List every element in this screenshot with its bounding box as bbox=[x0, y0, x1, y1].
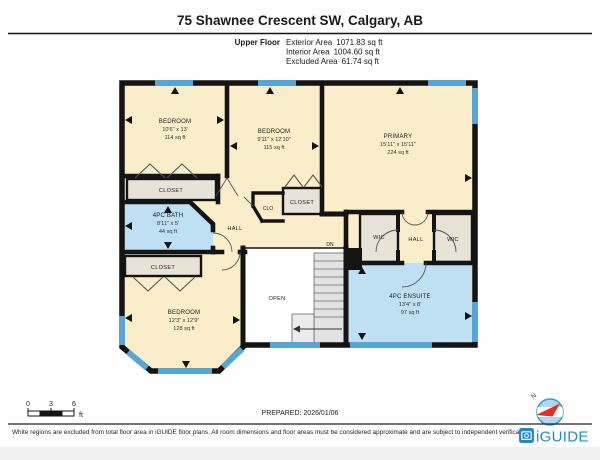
floor-label: Upper Floor bbox=[235, 38, 280, 47]
floor-plan-canvas: 75 Shawnee Crescent SW, Calgary, AB Uppe… bbox=[0, 0, 600, 460]
closet3-label: CLOSET bbox=[290, 200, 314, 206]
bath-dims: 8'11" x 5' bbox=[157, 221, 179, 227]
window-ensuite-bottom bbox=[350, 342, 432, 348]
window-bedroom2 bbox=[258, 80, 296, 86]
bedroom3-name: BEDROOM bbox=[168, 310, 200, 316]
stat-excluded-value: 61.74 sq ft bbox=[342, 57, 380, 66]
hall-right-label: HALL bbox=[408, 237, 423, 243]
bedroom2-dims: 9'11" x 12'10" bbox=[257, 137, 290, 143]
stat-interior-value: 1004.60 sq ft bbox=[334, 48, 381, 57]
clo-label: CLO bbox=[263, 206, 273, 212]
stat-interior-label: Interior Area bbox=[286, 48, 330, 57]
iguide-logo: iGUIDE bbox=[519, 428, 589, 446]
scale-tick-6: 6 bbox=[72, 401, 76, 408]
stat-interior: Interior Area1004.60 sq ft bbox=[286, 48, 381, 57]
bedroom3-dims: 12'3" x 12'9" bbox=[169, 318, 200, 324]
window-primary-top bbox=[428, 80, 466, 86]
scale-tick-3: 3 bbox=[49, 401, 53, 408]
window-ensuite-right bbox=[472, 302, 478, 342]
compass: N bbox=[530, 392, 564, 425]
stat-excluded-label: Excluded Area bbox=[286, 57, 338, 66]
bedroom2-area: 115 sq ft bbox=[263, 145, 284, 151]
window-open-bottom bbox=[270, 342, 320, 348]
bath-name: 4PC BATH bbox=[153, 213, 184, 219]
window-bedroom3-left bbox=[119, 316, 125, 345]
primary-dims: 15'11" x 15'11" bbox=[380, 142, 416, 148]
stat-exterior-label: Exterior Area bbox=[286, 38, 333, 47]
floor-plan-page: 75 Shawnee Crescent SW, Calgary, AB Uppe… bbox=[0, 0, 600, 460]
window-primary-right bbox=[472, 88, 478, 124]
bath-area: 44 sq ft bbox=[159, 229, 178, 235]
primary-area: 224 sq ft bbox=[387, 150, 409, 156]
scale-tick-0: 0 bbox=[26, 401, 30, 408]
bedroom2-name: BEDROOM bbox=[258, 129, 290, 135]
ensuite-name: 4PC ENSUITE bbox=[389, 294, 431, 300]
primary-name: PRIMARY bbox=[384, 134, 413, 140]
bedroom1-name: BEDROOM bbox=[159, 119, 191, 125]
page-title: 75 Shawnee Crescent SW, Calgary, AB bbox=[177, 13, 423, 28]
bedroom1-area: 114 sq ft bbox=[164, 135, 185, 141]
scale-bar: 0 3 6 ft bbox=[26, 401, 83, 419]
iguide-logo-text: iGUIDE bbox=[536, 429, 589, 446]
ensuite-area: 97 sq ft bbox=[401, 310, 420, 316]
closet1-label: CLOSET bbox=[159, 188, 183, 194]
window-bedroom1 bbox=[155, 80, 193, 86]
closet2-label: CLOSET bbox=[151, 265, 175, 271]
stat-exterior-value: 1071.83 sq ft bbox=[336, 38, 383, 47]
stat-exterior: Exterior Area1071.83 sq ft bbox=[286, 38, 383, 47]
bottom-strip bbox=[0, 447, 600, 460]
hall-center-label: HALL bbox=[227, 226, 242, 232]
wic-right-label: WIC bbox=[447, 237, 459, 243]
stat-excluded: Excluded Area61.74 sq ft bbox=[286, 57, 380, 66]
dn-label: DN bbox=[326, 242, 334, 248]
open-label: OPEN bbox=[268, 296, 285, 302]
scale-unit: ft bbox=[79, 412, 83, 419]
area-stats: Exterior Area1071.83 sq ft Interior Area… bbox=[286, 38, 383, 66]
compass-north-label: N bbox=[530, 392, 538, 401]
bedroom3-area: 128 sq ft bbox=[173, 326, 195, 332]
disclaimer-text: White regions are excluded from total fl… bbox=[12, 429, 532, 436]
wic-left-label: WIC bbox=[373, 235, 385, 241]
bedroom1-dims: 10'6" x 13' bbox=[162, 127, 188, 133]
prepared-date: PREPARED: 2026/01/06 bbox=[262, 410, 339, 417]
ensuite-dims: 13'4" x 8' bbox=[399, 302, 421, 308]
